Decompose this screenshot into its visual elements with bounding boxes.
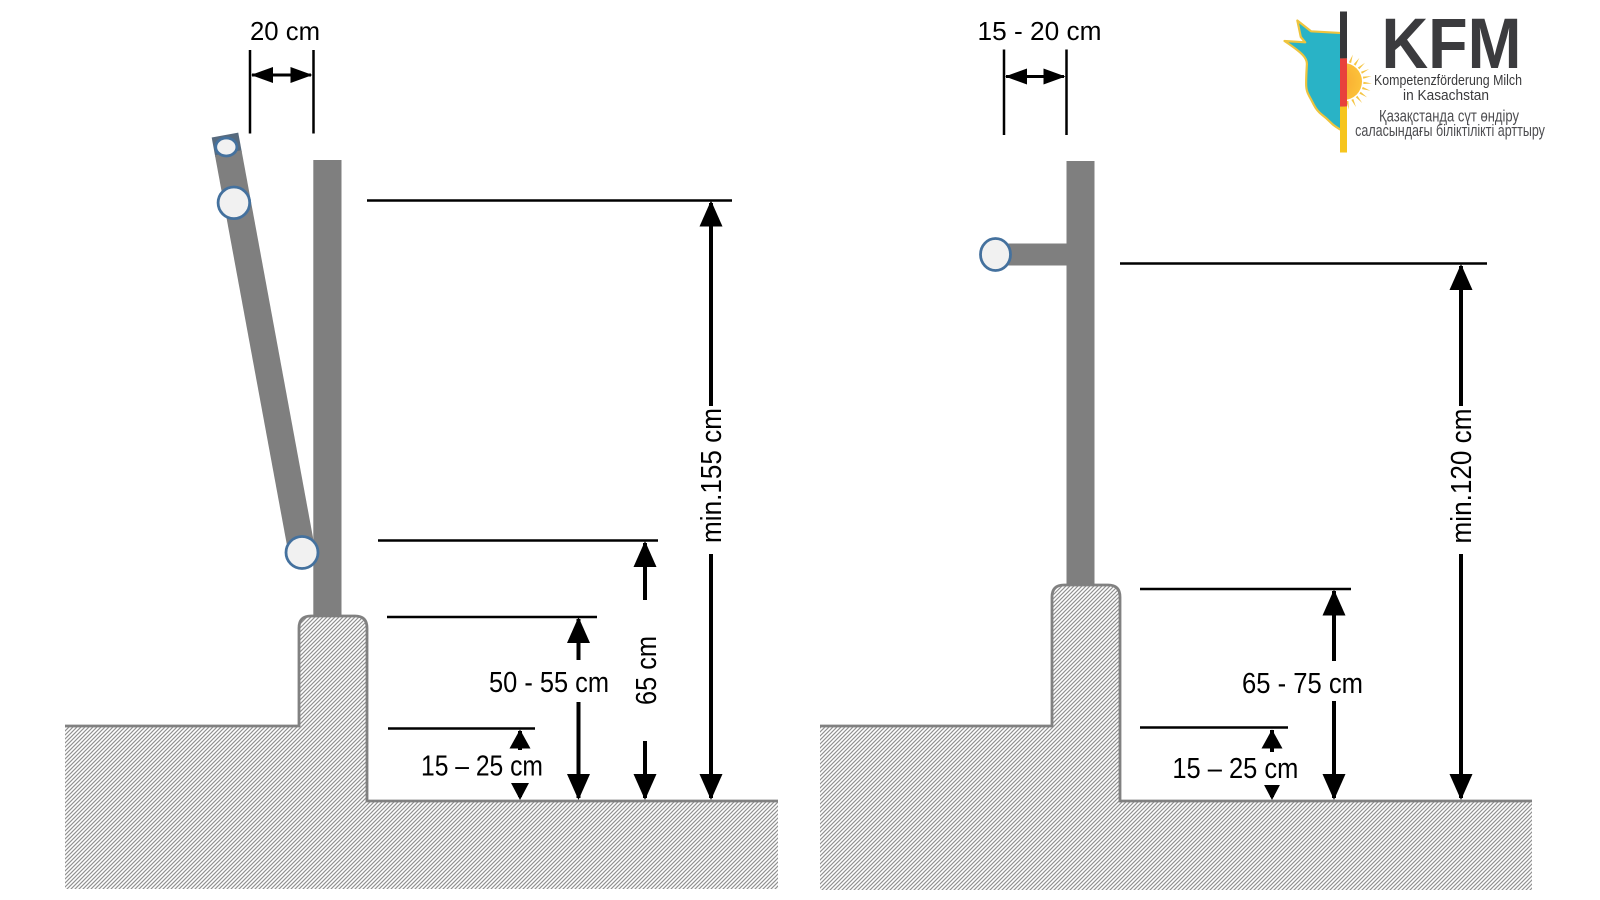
- svg-text:in Kasachstan: in Kasachstan: [1403, 87, 1489, 104]
- svg-text:65 cm: 65 cm: [629, 636, 662, 705]
- svg-text:min.120 cm: min.120 cm: [1445, 409, 1478, 544]
- svg-text:50 - 55 cm: 50 - 55 cm: [489, 665, 609, 698]
- svg-text:65 - 75 cm: 65 - 75 cm: [1242, 667, 1363, 700]
- svg-text:min.155 cm: min.155 cm: [695, 408, 728, 543]
- svg-text:20 cm: 20 cm: [250, 18, 320, 46]
- svg-text:саласындағы біліктілікті артты: саласындағы біліктілікті арттыру: [1355, 122, 1545, 140]
- svg-text:15 – 25 cm: 15 – 25 cm: [421, 750, 543, 782]
- svg-text:15 - 20 cm: 15 - 20 cm: [978, 16, 1102, 46]
- svg-text:15 – 25 cm: 15 – 25 cm: [1172, 751, 1298, 784]
- svg-text:Kompetenzförderung Milch: Kompetenzförderung Milch: [1374, 72, 1522, 88]
